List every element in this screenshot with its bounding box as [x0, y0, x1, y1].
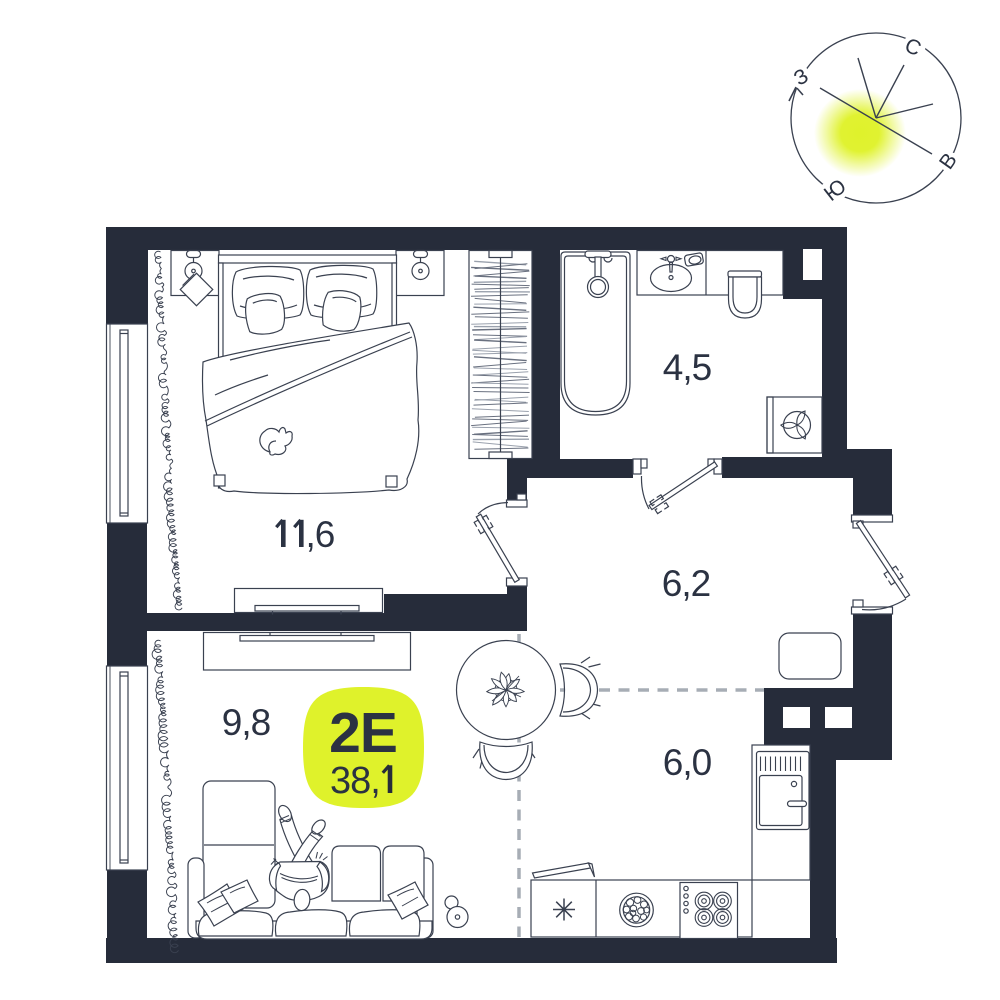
- svg-text:6,2: 6,2: [662, 563, 710, 604]
- svg-text:38,: 38,: [330, 760, 380, 802]
- svg-text:6,0: 6,0: [663, 742, 712, 783]
- svg-text:2Е: 2Е: [329, 701, 397, 765]
- svg-text:,6: ,6: [306, 514, 335, 555]
- svg-text:9,8: 9,8: [222, 702, 270, 743]
- svg-text:4,5: 4,5: [663, 347, 712, 388]
